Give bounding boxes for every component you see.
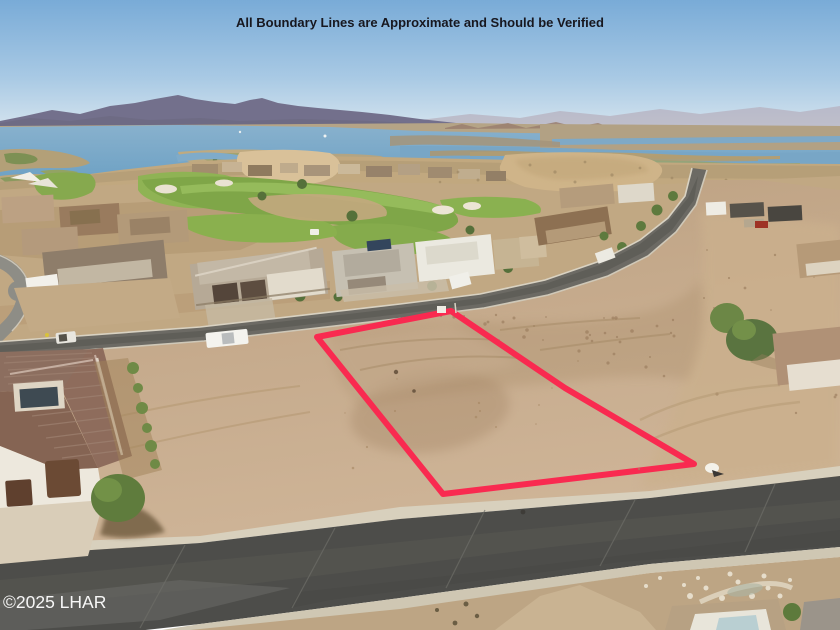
svg-text:©2025 LHAR: ©2025 LHAR: [3, 592, 106, 612]
svg-text:All Boundary Lines are Approxi: All Boundary Lines are Approximate and S…: [236, 15, 604, 30]
